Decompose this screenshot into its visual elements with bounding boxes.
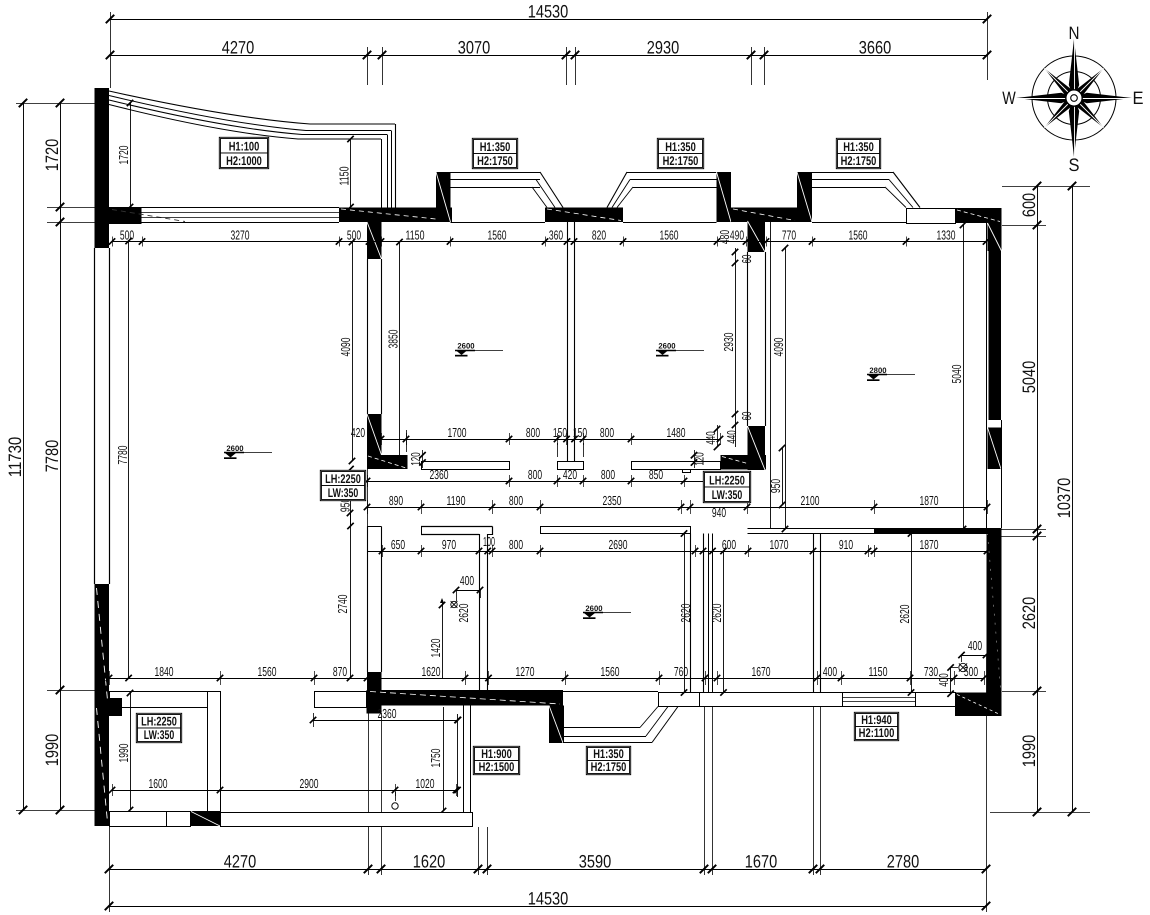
svg-text:1620: 1620 xyxy=(413,852,445,872)
svg-text:1190: 1190 xyxy=(447,493,466,508)
svg-text:LW:350: LW:350 xyxy=(712,488,743,502)
svg-text:S: S xyxy=(1069,155,1080,175)
svg-text:1560: 1560 xyxy=(660,228,679,243)
svg-text:870: 870 xyxy=(333,664,347,679)
svg-text:2600: 2600 xyxy=(658,342,676,351)
svg-text:11730: 11730 xyxy=(5,437,25,478)
svg-text:800: 800 xyxy=(509,493,523,508)
svg-text:400: 400 xyxy=(460,573,474,588)
svg-text:1840: 1840 xyxy=(155,664,174,679)
svg-text:2930: 2930 xyxy=(721,333,736,352)
svg-text:500: 500 xyxy=(964,664,978,679)
svg-text:3270: 3270 xyxy=(231,228,250,243)
svg-text:2600: 2600 xyxy=(585,604,603,613)
svg-text:910: 910 xyxy=(839,537,853,552)
svg-text:7780: 7780 xyxy=(115,446,130,465)
svg-text:420: 420 xyxy=(351,425,365,440)
svg-text:800: 800 xyxy=(600,425,614,440)
svg-text:1750: 1750 xyxy=(428,749,443,768)
svg-text:2620: 2620 xyxy=(709,604,724,623)
svg-text:60: 60 xyxy=(739,412,754,421)
svg-text:2930: 2930 xyxy=(647,38,679,58)
svg-text:1670: 1670 xyxy=(752,664,771,679)
svg-text:150: 150 xyxy=(573,425,587,440)
svg-text:5040: 5040 xyxy=(1019,361,1039,393)
svg-text:E: E xyxy=(1133,88,1144,108)
svg-text:400: 400 xyxy=(823,664,837,679)
svg-text:1150: 1150 xyxy=(406,228,425,243)
svg-text:440: 440 xyxy=(724,430,739,443)
svg-text:1420: 1420 xyxy=(428,639,443,658)
svg-text:800: 800 xyxy=(601,467,615,482)
svg-text:600: 600 xyxy=(1019,193,1039,217)
svg-text:2360: 2360 xyxy=(430,467,449,482)
svg-text:1150: 1150 xyxy=(869,664,888,679)
svg-text:1560: 1560 xyxy=(601,664,620,679)
svg-text:H2:1750: H2:1750 xyxy=(591,760,627,774)
svg-text:2350: 2350 xyxy=(603,493,622,508)
svg-text:H1:350: H1:350 xyxy=(593,747,624,761)
svg-text:2780: 2780 xyxy=(887,852,919,872)
svg-text:150: 150 xyxy=(553,425,567,440)
svg-text:850: 850 xyxy=(649,467,663,482)
svg-text:2620: 2620 xyxy=(678,604,693,623)
svg-text:2900: 2900 xyxy=(300,776,319,791)
svg-text:760: 760 xyxy=(674,664,688,679)
svg-text:5040: 5040 xyxy=(949,365,964,384)
svg-text:3850: 3850 xyxy=(386,330,401,349)
svg-text:2800: 2800 xyxy=(869,366,887,375)
svg-text:H1:100: H1:100 xyxy=(229,140,260,154)
svg-text:770: 770 xyxy=(782,228,796,243)
svg-text:LH:2250: LH:2250 xyxy=(325,472,361,486)
svg-text:1700: 1700 xyxy=(448,425,467,440)
svg-text:2360: 2360 xyxy=(378,706,397,721)
svg-text:H2:1750: H2:1750 xyxy=(663,154,699,168)
svg-text:440: 440 xyxy=(703,431,718,444)
svg-text:LH:2250: LH:2250 xyxy=(709,474,745,488)
svg-text:650: 650 xyxy=(391,537,405,552)
svg-text:1020: 1020 xyxy=(416,776,435,791)
svg-text:LH:2250: LH:2250 xyxy=(141,715,177,729)
svg-text:3070: 3070 xyxy=(458,38,490,58)
svg-text:480: 480 xyxy=(717,230,732,244)
svg-text:420: 420 xyxy=(563,467,577,482)
svg-text:950: 950 xyxy=(768,479,783,493)
svg-text:1990: 1990 xyxy=(116,744,131,763)
svg-text:4270: 4270 xyxy=(224,852,256,872)
svg-text:1870: 1870 xyxy=(920,493,939,508)
svg-text:1480: 1480 xyxy=(667,425,686,440)
svg-text:1620: 1620 xyxy=(422,664,441,679)
svg-text:1720: 1720 xyxy=(116,146,131,165)
svg-text:14530: 14530 xyxy=(528,2,569,22)
svg-text:1990: 1990 xyxy=(42,734,62,766)
svg-text:1150: 1150 xyxy=(337,167,352,186)
svg-text:800: 800 xyxy=(528,467,542,482)
svg-text:60: 60 xyxy=(739,255,754,264)
svg-text:H1:350: H1:350 xyxy=(843,140,874,154)
svg-text:800: 800 xyxy=(509,537,523,552)
svg-text:4090: 4090 xyxy=(771,338,786,357)
svg-text:2740: 2740 xyxy=(335,595,350,614)
svg-text:10370: 10370 xyxy=(1054,478,1074,519)
svg-text:2600: 2600 xyxy=(226,444,244,453)
svg-text:400: 400 xyxy=(936,673,951,686)
svg-text:1070: 1070 xyxy=(770,537,789,552)
svg-text:H2:1500: H2:1500 xyxy=(479,760,515,774)
svg-text:LW:350: LW:350 xyxy=(144,728,175,742)
svg-text:890: 890 xyxy=(389,493,403,508)
svg-text:H2:1100: H2:1100 xyxy=(859,726,895,740)
svg-text:N: N xyxy=(1069,23,1080,43)
svg-text:H1:350: H1:350 xyxy=(665,140,696,154)
svg-text:490: 490 xyxy=(730,228,744,243)
svg-text:4090: 4090 xyxy=(338,338,353,357)
svg-text:4270: 4270 xyxy=(222,38,254,58)
svg-text:2600: 2600 xyxy=(457,342,475,351)
svg-text:820: 820 xyxy=(592,228,606,243)
svg-text:940: 940 xyxy=(712,505,726,520)
svg-text:1720: 1720 xyxy=(42,139,62,171)
svg-text:H2:1000: H2:1000 xyxy=(226,154,262,168)
svg-text:1600: 1600 xyxy=(149,776,168,791)
svg-text:1670: 1670 xyxy=(745,852,777,872)
svg-text:W: W xyxy=(1002,88,1016,108)
svg-text:100: 100 xyxy=(483,534,495,549)
svg-text:400: 400 xyxy=(968,638,982,653)
svg-text:H2:1750: H2:1750 xyxy=(477,154,513,168)
svg-text:800: 800 xyxy=(526,425,540,440)
svg-text:H1:940: H1:940 xyxy=(861,713,892,727)
svg-text:3590: 3590 xyxy=(579,852,611,872)
svg-text:1270: 1270 xyxy=(516,664,535,679)
svg-text:1560: 1560 xyxy=(849,228,868,243)
svg-text:7780: 7780 xyxy=(42,440,62,472)
svg-text:1870: 1870 xyxy=(920,537,939,552)
svg-text:H2:1750: H2:1750 xyxy=(841,154,877,168)
svg-text:1330: 1330 xyxy=(937,228,956,243)
svg-text:H1:350: H1:350 xyxy=(480,140,511,154)
svg-text:970: 970 xyxy=(442,537,456,552)
svg-text:2100: 2100 xyxy=(801,493,820,508)
svg-text:2690: 2690 xyxy=(609,537,628,552)
svg-text:1560: 1560 xyxy=(488,228,507,243)
svg-text:14530: 14530 xyxy=(528,889,569,909)
svg-text:3660: 3660 xyxy=(859,38,891,58)
svg-text:LW:350: LW:350 xyxy=(328,486,359,500)
svg-text:2620: 2620 xyxy=(1019,597,1039,629)
svg-text:1560: 1560 xyxy=(258,664,277,679)
svg-text:1990: 1990 xyxy=(1019,735,1039,767)
svg-text:2620: 2620 xyxy=(456,604,471,623)
svg-text:500: 500 xyxy=(120,228,134,243)
svg-text:H1:900: H1:900 xyxy=(481,747,512,761)
svg-text:2620: 2620 xyxy=(897,605,912,624)
svg-text:730: 730 xyxy=(924,664,938,679)
svg-text:360: 360 xyxy=(549,228,563,243)
